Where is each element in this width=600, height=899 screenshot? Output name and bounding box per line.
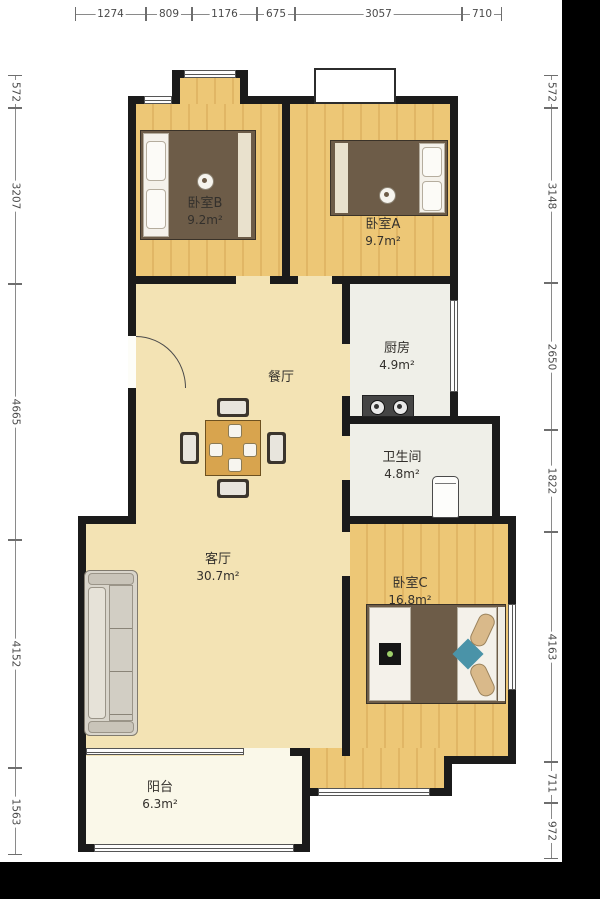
bedroom-a-door-gap [298, 276, 332, 284]
balcony-door-gap [244, 748, 290, 756]
dimension-chain-right: 572 3148 2650 1822 4163 711 972 [544, 75, 558, 859]
dim-label: 1176 [209, 9, 240, 20]
dim-label: 710 [470, 9, 494, 20]
wall [128, 284, 136, 524]
bedroom-c-door-gap [342, 532, 350, 576]
dim-label: 1274 [95, 9, 126, 20]
burner [370, 400, 385, 415]
wall [342, 516, 516, 524]
pillow [422, 147, 442, 177]
dim-label: 711 [546, 770, 557, 794]
wall [282, 96, 316, 104]
dim-label: 4163 [546, 632, 557, 663]
wall [128, 96, 136, 284]
dim-label: 1563 [10, 796, 21, 827]
dining-table [205, 420, 261, 476]
bedroom-b-door-gap [236, 276, 270, 284]
bedroom-a-bed [330, 140, 448, 216]
bedroom-c-window [508, 604, 516, 690]
floorplan-image[interactable]: 1274 809 1176 675 3057 710 572 3207 4665… [0, 0, 562, 862]
dim-label: 4665 [10, 397, 21, 428]
dim-label: 809 [157, 9, 181, 20]
dimension-chain-left: 572 3207 4665 4152 1563 [8, 75, 22, 855]
place-setting [243, 443, 257, 457]
wall [394, 96, 458, 104]
entry-door-gap [128, 336, 136, 388]
dim-label: 2650 [546, 341, 557, 372]
dining-chair [267, 432, 286, 464]
room-label-bedroom-c: 卧室C 16.8m² [355, 576, 465, 608]
wall [302, 796, 310, 852]
wall [78, 516, 136, 524]
dimension-chain-top: 1274 809 1176 675 3057 710 [75, 7, 502, 21]
dim-label: 3207 [10, 181, 21, 212]
wall [282, 96, 290, 284]
stove [362, 395, 414, 417]
sofa [84, 570, 138, 736]
bay-window [314, 68, 396, 104]
screenshot-canvas: 1274 809 1176 675 3057 710 572 3207 4665… [0, 0, 600, 899]
dim-label: 3057 [363, 9, 394, 20]
sofa-back-cushions [88, 587, 106, 719]
wall [450, 96, 458, 292]
room-label-balcony: 阳台 6.3m² [105, 780, 215, 812]
dim-label: 572 [10, 79, 21, 103]
dim-label: 3148 [546, 180, 557, 211]
wall [128, 276, 458, 284]
tv-icon [379, 643, 401, 665]
wall [492, 416, 500, 524]
dining-chair [180, 432, 199, 464]
place-setting [228, 424, 242, 438]
dim-label: 572 [546, 79, 557, 103]
wall [342, 416, 500, 424]
room-label-living: 客厅 30.7m² [163, 552, 273, 584]
room-label-kitchen: 厨房 4.9m² [342, 341, 452, 373]
room-label-bathroom: 卫生间 4.8m² [347, 450, 457, 482]
dim-label: 972 [546, 819, 557, 843]
dim-label: 675 [264, 9, 288, 20]
sofa-armrest [88, 721, 134, 733]
wall [290, 748, 302, 756]
bed-decor [197, 173, 214, 190]
bedroom-c-bed [366, 604, 506, 704]
wall [302, 748, 310, 796]
window [144, 96, 172, 104]
sofa-seat-cushions [109, 585, 133, 721]
room-label-bedroom-b: 卧室B 9.2m² [150, 196, 260, 228]
dining-chair [217, 398, 249, 417]
place-setting [228, 458, 242, 472]
burner [393, 400, 408, 415]
room-label-bedroom-a: 卧室A 9.7m² [328, 217, 438, 249]
bed-decor [379, 187, 396, 204]
pillow [146, 141, 166, 181]
balcony-inner-window [86, 748, 244, 755]
wall [444, 756, 516, 764]
bedroom-b-bay-floor [180, 78, 240, 104]
window [184, 70, 236, 78]
sofa-armrest [88, 573, 134, 585]
balcony-window [94, 844, 294, 852]
headboard [498, 607, 505, 701]
pillow [422, 181, 442, 211]
dining-chair [217, 479, 249, 498]
place-setting [209, 443, 223, 457]
bed-blanket-fold [335, 143, 348, 213]
room-label-dining: 餐厅 [236, 370, 326, 387]
dim-label: 4152 [10, 639, 21, 670]
wall [78, 748, 86, 852]
wall [240, 96, 288, 104]
dim-label: 1822 [546, 466, 557, 497]
bedroom-c-bay-window [318, 788, 430, 796]
bedroom-c-bay-floor [310, 748, 444, 788]
